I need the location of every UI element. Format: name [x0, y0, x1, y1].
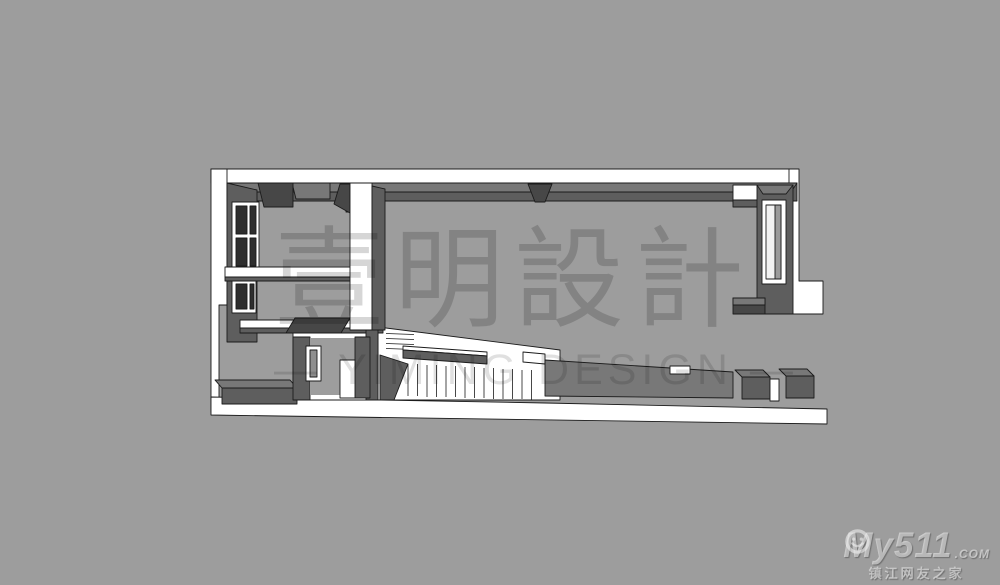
left-slab-strip [211, 169, 227, 412]
watermark-chinese: 壹明設計 [274, 220, 754, 341]
screenshot-root: 壹明設計 — YIMING DESIGN — My 511 .COM 镇江网友之… [0, 0, 1000, 585]
top-slab-strip [211, 169, 797, 183]
logo-text-511: 511 [894, 528, 953, 563]
logo-text-com: .COM [955, 548, 990, 563]
right-wall-top [757, 185, 793, 194]
pilaster-light [292, 183, 330, 199]
site-logo-tagline: 镇江网友之家 [843, 563, 990, 582]
window-upper-left [232, 202, 259, 270]
bottom-slab-band [211, 397, 827, 424]
top-wall [227, 183, 797, 213]
window-lower-left [232, 280, 256, 313]
window-right [762, 200, 786, 284]
smiley-face-icon [844, 528, 871, 555]
site-logo: My 511 .COM 镇江网友之家 [843, 528, 990, 582]
watermark-latin: — YIMING DESIGN — [274, 346, 798, 395]
site-logo-brand: My 511 .COM [843, 528, 990, 563]
pilaster-dark [258, 183, 293, 207]
left-wall [227, 183, 259, 342]
